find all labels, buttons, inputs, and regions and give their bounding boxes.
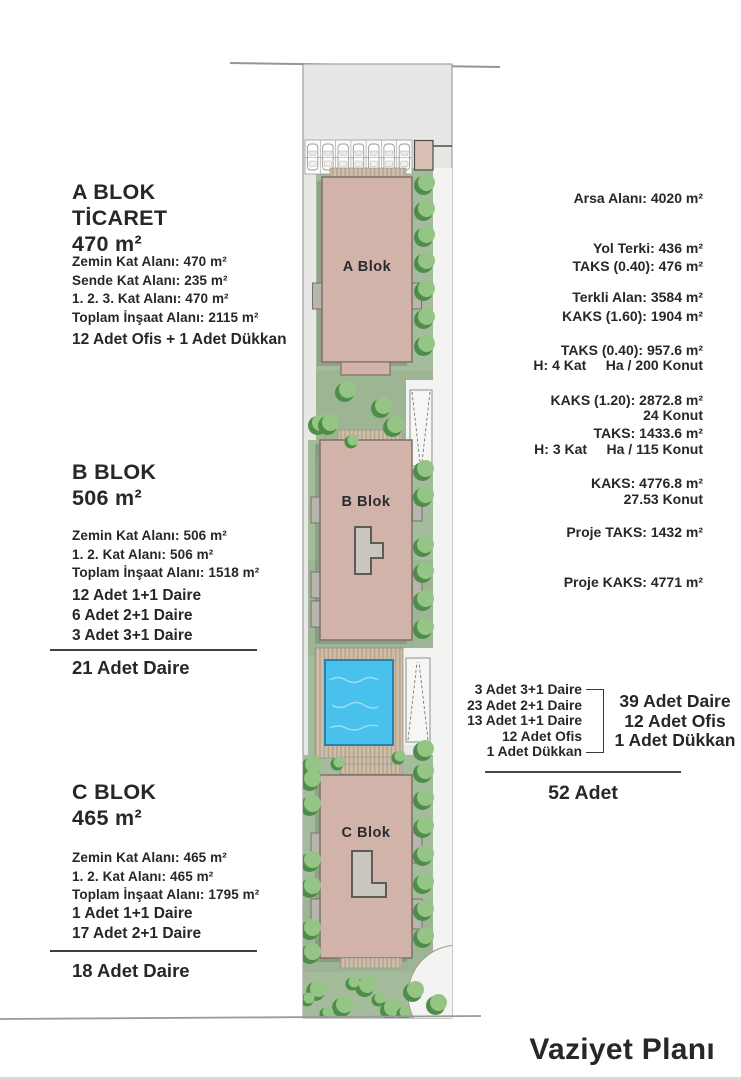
zoning-line: Proje TAKS: 1432 m² bbox=[564, 524, 703, 541]
zoning-line: TAKS (0.40): 476 m² bbox=[533, 258, 703, 275]
detail-line: 1. 2. Kat Alanı: 465 m² bbox=[72, 868, 259, 887]
unit-line: 12 Adet 1+1 Daire bbox=[72, 586, 201, 606]
summary-total-line: 1 Adet Dükkan bbox=[608, 731, 741, 751]
ramp-pool bbox=[406, 658, 430, 742]
zoning-line: TAKS: 1433.6 m² bbox=[564, 425, 703, 442]
summary-grand-total: 52 Adet bbox=[485, 782, 681, 805]
summary-breakdown: 3 Adet 3+1 Daire 23 Adet 2+1 Daire 13 Ad… bbox=[467, 682, 582, 760]
block-b-units: 12 Adet 1+1 Daire 6 Adet 2+1 Daire 3 Ade… bbox=[72, 586, 201, 646]
block-b-map-label: B Blok bbox=[342, 494, 391, 510]
summary-total-line: 12 Adet Ofis bbox=[608, 712, 741, 732]
pool-area bbox=[315, 648, 403, 767]
summary-totals: 39 Adet Daire 12 Adet Ofis 1 Adet Dükkan bbox=[608, 692, 741, 751]
unit-line: 12 Adet Ofis + 1 Adet Dükkan bbox=[72, 330, 287, 350]
detail-line: 1. 2. 3. Kat Alanı: 470 m² bbox=[72, 290, 259, 309]
breakdown-line: 1 Adet Dükkan bbox=[467, 744, 582, 760]
block-c-divider bbox=[50, 950, 257, 952]
block-b-total: 21 Adet Daire bbox=[72, 657, 190, 679]
block-b-building bbox=[311, 430, 422, 644]
block-a-details: Zemin Kat Alanı: 470 m² Sende Kat Alanı:… bbox=[72, 253, 259, 327]
car-icon bbox=[323, 144, 333, 170]
block-c-title: C BLOK bbox=[72, 779, 156, 805]
zoning-line: TAKS (0.40): 957.6 m² bbox=[534, 342, 703, 359]
block-c-building bbox=[311, 764, 422, 968]
block-b-details: Zemin Kat Alanı: 506 m² 1. 2. Kat Alanı:… bbox=[72, 527, 259, 583]
car-icon bbox=[384, 144, 394, 170]
detail-line: Toplam İnşaat Alanı: 1795 m² bbox=[72, 886, 259, 905]
block-b-area: 506 m² bbox=[72, 485, 156, 511]
page-title: Vaziyet Planı bbox=[529, 1033, 715, 1067]
zoning-totals-group: TAKS: 1433.6 m² KAKS: 4776.8 m² Proje TA… bbox=[564, 392, 703, 623]
block-c-map-label: C Blok bbox=[342, 825, 391, 841]
zoning-line: Arsa Alanı: 4020 m² bbox=[572, 190, 703, 207]
car-icon bbox=[307, 144, 317, 170]
car-icon bbox=[353, 144, 363, 170]
zoning-line: KAKS: 4776.8 m² bbox=[564, 475, 703, 492]
block-a-heading: A BLOK TİCARET 470 m² bbox=[72, 179, 167, 257]
breakdown-line: 3 Adet 3+1 Daire bbox=[467, 682, 582, 698]
breakdown-line: 23 Adet 2+1 Daire bbox=[467, 698, 582, 714]
detail-line: Zemin Kat Alanı: 506 m² bbox=[72, 527, 259, 546]
detail-line: Zemin Kat Alanı: 470 m² bbox=[72, 253, 259, 272]
car-icon bbox=[399, 144, 409, 170]
detail-line: Zemin Kat Alanı: 465 m² bbox=[72, 849, 259, 868]
block-c-heading: C BLOK 465 m² bbox=[72, 779, 156, 831]
detail-line: 1. 2. Kat Alanı: 506 m² bbox=[72, 546, 259, 565]
car-icon bbox=[338, 144, 348, 170]
block-c-details: Zemin Kat Alanı: 465 m² 1. 2. Kat Alanı:… bbox=[72, 849, 259, 905]
road-corner-curve bbox=[408, 945, 508, 1045]
summary-bracket bbox=[586, 689, 604, 753]
block-c-total: 18 Adet Daire bbox=[72, 960, 190, 982]
block-a-map-label: A Blok bbox=[343, 259, 392, 275]
summary-total-line: 39 Adet Daire bbox=[608, 692, 741, 712]
block-c-units: 1 Adet 1+1 Daire 17 Adet 2+1 Daire bbox=[72, 904, 201, 944]
breakdown-line: 12 Adet Ofis bbox=[467, 729, 582, 745]
detail-line: Sende Kat Alanı: 235 m² bbox=[72, 272, 259, 291]
unit-line: 3 Adet 3+1 Daire bbox=[72, 626, 201, 646]
unit-line: 17 Adet 2+1 Daire bbox=[72, 924, 201, 944]
unit-line: 1 Adet 1+1 Daire bbox=[72, 904, 201, 924]
zoning-line: Proje KAKS: 4771 m² bbox=[564, 574, 703, 591]
block-a-title: A BLOK bbox=[72, 179, 167, 205]
block-b-divider bbox=[50, 649, 257, 651]
block-b-title: B BLOK bbox=[72, 459, 156, 485]
detail-line: Toplam İnşaat Alanı: 1518 m² bbox=[72, 564, 259, 583]
block-a-units: 12 Adet Ofis + 1 Adet Dükkan bbox=[72, 330, 287, 350]
summary-divider bbox=[485, 771, 681, 773]
block-b-heading: B BLOK 506 m² bbox=[72, 459, 156, 511]
breakdown-line: 13 Adet 1+1 Daire bbox=[467, 713, 582, 729]
site-plan-page: A Blok B Blok C Blok A BLOK TİCARET 470 … bbox=[0, 0, 741, 1080]
unit-line: 6 Adet 2+1 Daire bbox=[72, 606, 201, 626]
block-a-subtitle: TİCARET bbox=[72, 205, 167, 231]
block-c-area: 465 m² bbox=[72, 805, 156, 831]
car-icon bbox=[369, 144, 379, 170]
ramp-a bbox=[410, 390, 432, 466]
detail-line: Toplam İnşaat Alanı: 2115 m² bbox=[72, 309, 259, 328]
